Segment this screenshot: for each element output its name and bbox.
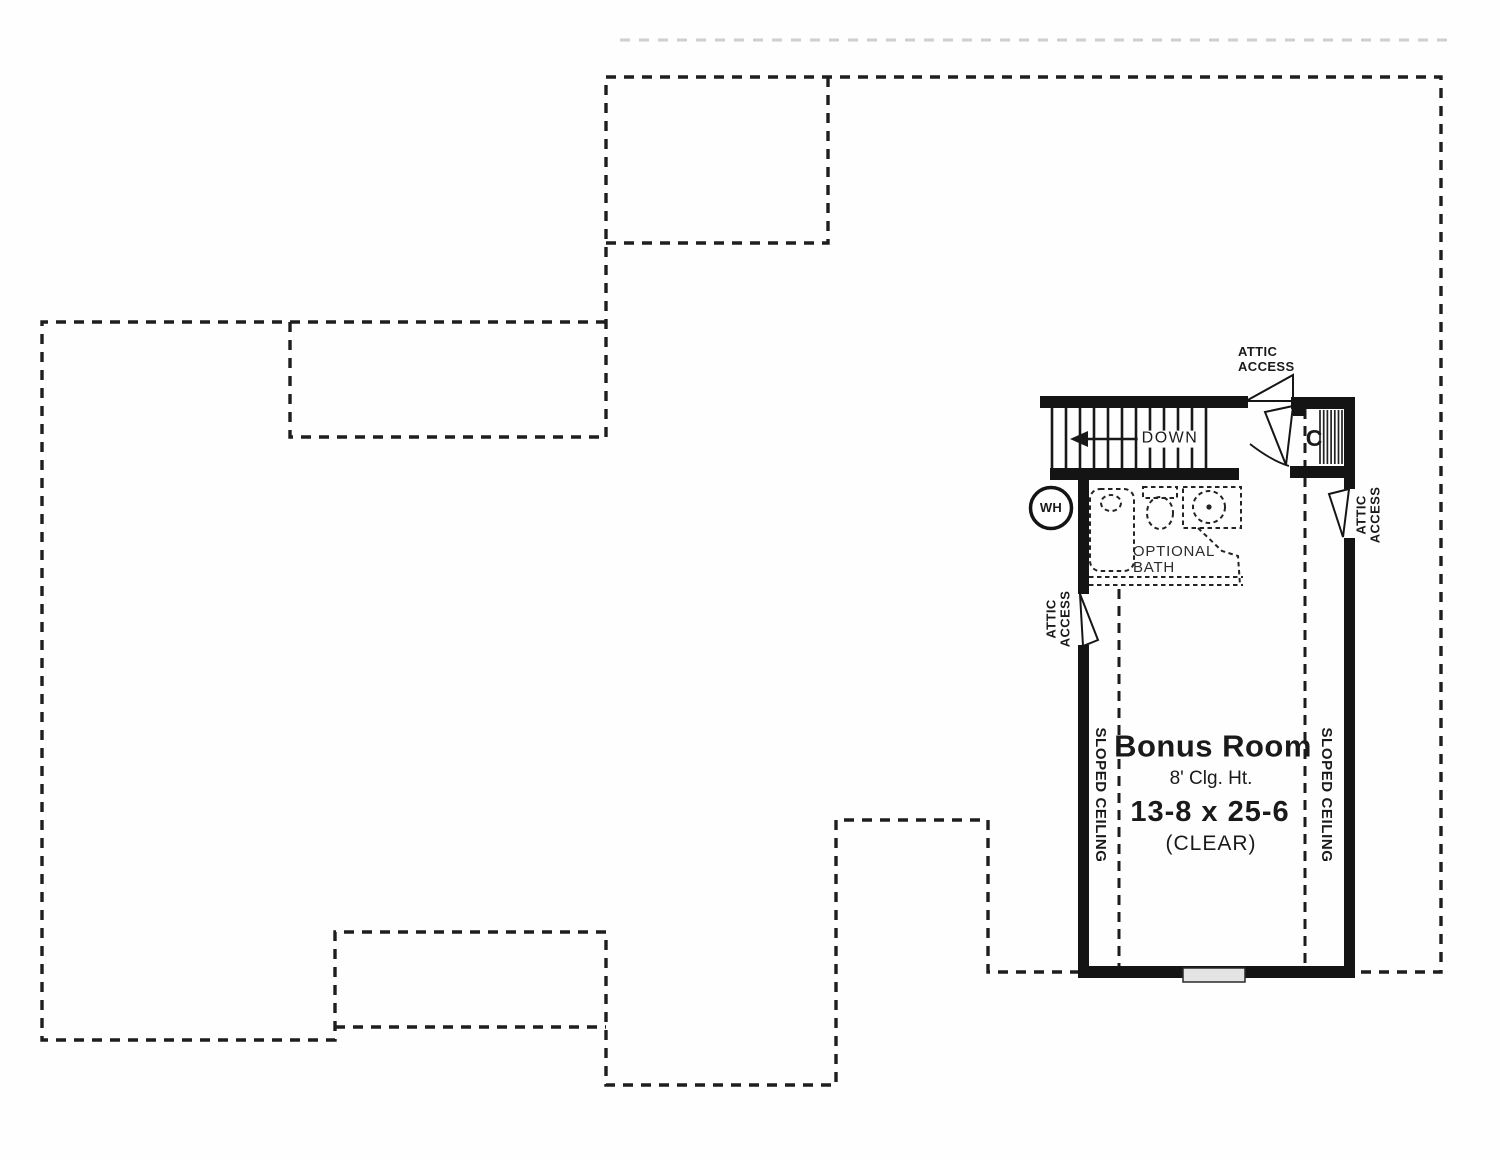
roof-outline-main — [606, 77, 1441, 972]
closet-bottom-wall — [1290, 466, 1355, 478]
floor-plan-linework — [0, 0, 1500, 1160]
attic-access-label-right: ATTIC ACCESS — [1354, 487, 1381, 544]
attic-access-label-top: ATTIC ACCESS — [1238, 344, 1295, 374]
attic-access-label-left-line1: ATTIC — [1044, 591, 1058, 648]
sloped-ceiling-label-right: SLOPED CEILING — [1318, 727, 1334, 862]
sink-bowl — [1101, 495, 1121, 511]
optional-bath-label-line1: OPTIONAL — [1133, 544, 1215, 560]
shower-pan — [1183, 487, 1241, 528]
room-clearance-note: (CLEAR) — [1165, 833, 1256, 855]
floor-plan-canvas: Bonus Room 8' Clg. Ht. 13-8 x 25-6 (CLEA… — [0, 0, 1500, 1160]
room-dimensions: 13-8 x 25-6 — [1130, 797, 1289, 827]
left-wall-upper — [1078, 468, 1089, 594]
attic-access-label-top-line2: ACCESS — [1238, 359, 1295, 374]
closet-shelving-hatch — [1320, 410, 1342, 464]
shower-drain — [1206, 504, 1211, 509]
attic-access-label-left: ATTIC ACCESS — [1044, 591, 1071, 648]
closet-left-stub — [1293, 408, 1305, 416]
closet-label: C — [1306, 426, 1323, 450]
attic-access-label-top-line1: ATTIC — [1238, 344, 1295, 359]
stair-bottom-wall — [1050, 468, 1239, 480]
left-wall-lower — [1078, 645, 1089, 978]
attic-door-top-leader — [1246, 375, 1293, 401]
vanity — [1090, 489, 1134, 571]
walls — [1040, 396, 1355, 978]
optional-bath-label-line2: BATH — [1133, 560, 1175, 576]
stair-top-wall — [1040, 396, 1248, 408]
right-wall-lower — [1344, 538, 1355, 978]
roof-dormer-top-left — [606, 77, 828, 243]
ceiling-height-note: 8' Clg. Ht. — [1170, 769, 1253, 789]
attic-access-label-right-line1: ATTIC — [1354, 487, 1368, 544]
room-title: Bonus Room — [1114, 731, 1312, 764]
attic-access-label-right-line2: ACCESS — [1368, 487, 1382, 544]
attic-door-left-leaf — [1080, 594, 1098, 646]
water-heater-label: WH — [1040, 501, 1062, 515]
attic-door-right-leaf — [1329, 489, 1349, 537]
sloped-ceiling-label-left: SLOPED CEILING — [1092, 727, 1108, 862]
roof-outline — [42, 77, 1441, 1085]
attic-access-label-left-line2: ACCESS — [1058, 591, 1072, 648]
attic-access-doors — [1080, 375, 1349, 646]
down-label: DOWN — [1138, 431, 1203, 448]
roof-dormer-mid-left — [290, 322, 606, 437]
toilet-bowl — [1147, 497, 1173, 529]
sloped-ceiling-lines — [1119, 409, 1305, 966]
window — [1183, 968, 1245, 982]
